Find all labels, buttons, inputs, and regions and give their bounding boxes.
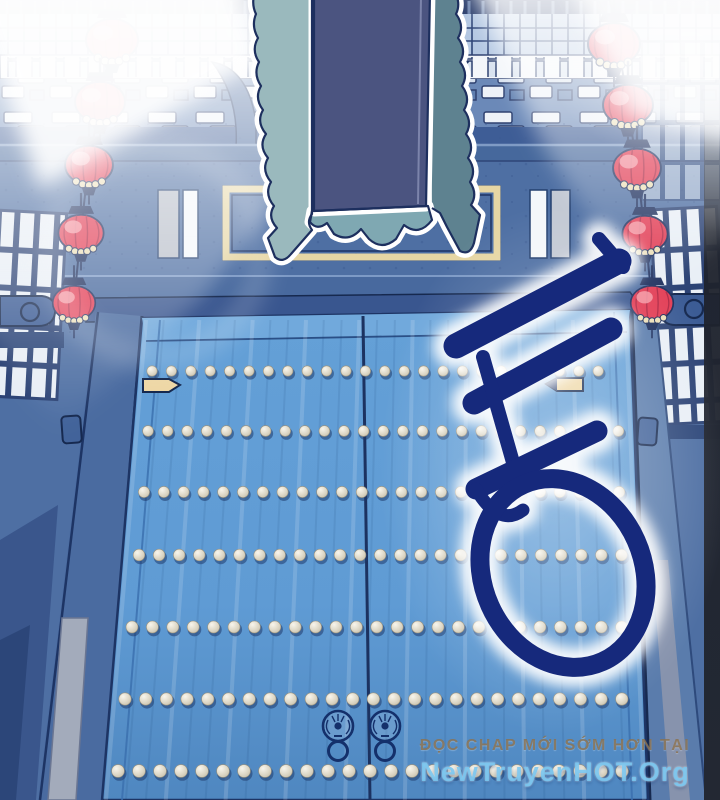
door-stud [406, 765, 419, 778]
door-stud [280, 426, 291, 437]
door-stud [391, 621, 403, 633]
door-stud [259, 765, 272, 778]
door-stud [336, 486, 347, 497]
door-stud [371, 621, 383, 633]
door-stud [182, 426, 193, 437]
door-stud [326, 693, 338, 705]
door-stud [274, 549, 286, 561]
door-stud [244, 366, 254, 376]
door-stud [153, 549, 165, 561]
door-stud [112, 765, 125, 778]
door-stud [160, 693, 172, 705]
door-stud [201, 426, 212, 437]
door-stud [146, 621, 158, 633]
door-stud [302, 366, 312, 376]
door-stud [167, 621, 179, 633]
door-stud [158, 486, 169, 497]
door-stud [321, 366, 331, 376]
door-stud [269, 621, 281, 633]
door-stud [374, 549, 386, 561]
door-stud [214, 549, 226, 561]
door-stud [196, 765, 209, 778]
door-stud [254, 549, 266, 561]
door-stud [356, 486, 367, 497]
door-stud [126, 621, 138, 633]
door-stud [187, 621, 199, 633]
door-stud [388, 693, 400, 705]
door-stud [310, 621, 322, 633]
door-stud [616, 765, 629, 778]
door-stud [181, 693, 193, 705]
door-stud [119, 693, 131, 705]
door-stud [238, 765, 251, 778]
door-stud [237, 486, 248, 497]
door-stud [222, 693, 234, 705]
door-stud [490, 765, 503, 778]
door-stud [448, 765, 461, 778]
door-stud [299, 426, 310, 437]
door-stud [143, 426, 154, 437]
door-stud [385, 765, 398, 778]
door-stud [241, 426, 252, 437]
door-stud [354, 549, 366, 561]
door-stud [367, 693, 379, 705]
door-stud [358, 426, 369, 437]
door-stud [205, 366, 215, 376]
door-stud [314, 549, 326, 561]
door-stud [263, 366, 273, 376]
calligraphy-sfx-dong [380, 205, 720, 735]
door-stud [217, 765, 230, 778]
door-stud [330, 621, 342, 633]
door-stud [133, 765, 146, 778]
door-stud [202, 693, 214, 705]
door-stud [154, 765, 167, 778]
door-stud [175, 765, 188, 778]
comic-panel: ĐỌC CHAP MỚI SỚM HƠN TẠI NewTruyenHOT.Or… [0, 0, 720, 800]
gate-scene [0, 0, 720, 800]
door-stud [133, 549, 145, 561]
door-stud [347, 693, 359, 705]
door-stud [289, 621, 301, 633]
door-stud [429, 693, 441, 705]
door-stud [450, 693, 462, 705]
banner-panel [314, 0, 430, 211]
door-stud [511, 765, 524, 778]
door-stud [380, 366, 390, 376]
door-stud [248, 621, 260, 633]
door-stud [140, 693, 152, 705]
door-stud [343, 765, 356, 778]
door-stud [319, 426, 330, 437]
door-stud [194, 549, 206, 561]
door-stud [409, 693, 421, 705]
door-stud [138, 486, 149, 497]
door-stud [317, 486, 328, 497]
door-stud [283, 366, 293, 376]
door-stud [334, 549, 346, 561]
door-stud [305, 693, 317, 705]
door-stud [553, 765, 566, 778]
door-stud [301, 765, 314, 778]
door-stud [186, 366, 196, 376]
door-stud [224, 366, 234, 376]
door-stud [218, 486, 229, 497]
door-stud [339, 426, 350, 437]
door-stud [221, 426, 232, 437]
door-stud [198, 486, 209, 497]
hanging-banner [253, 0, 480, 260]
door-stud [532, 765, 545, 778]
door-stud [294, 549, 306, 561]
door-stud [178, 486, 189, 497]
door-stud [228, 621, 240, 633]
door-stud [234, 549, 246, 561]
door-stud [162, 426, 173, 437]
door-stud [264, 693, 276, 705]
door-stud [341, 366, 351, 376]
door-stud [280, 765, 293, 778]
door-stud [173, 549, 185, 561]
door-stud [360, 366, 370, 376]
door-stud [243, 693, 255, 705]
door-stud [257, 486, 268, 497]
door-stud [595, 765, 608, 778]
door-stud [350, 621, 362, 633]
door-stud [260, 426, 271, 437]
door-stud [277, 486, 288, 497]
door-stud [297, 486, 308, 497]
door-stud [574, 765, 587, 778]
door-stud [427, 765, 440, 778]
door-stud [284, 693, 296, 705]
door-stud [208, 621, 220, 633]
door-stud [469, 765, 482, 778]
door-stud [364, 765, 377, 778]
door-stud [322, 765, 335, 778]
